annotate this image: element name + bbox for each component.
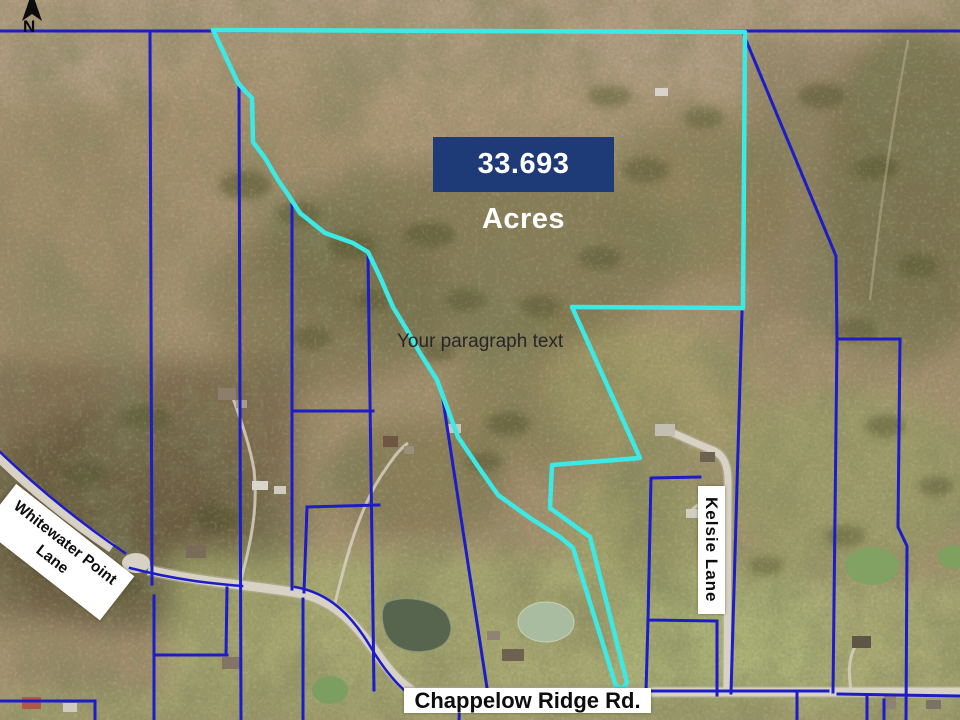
terrain-grain-light (0, 0, 960, 720)
pond-oval (518, 602, 574, 642)
aerial-map (0, 0, 960, 720)
map-canvas: N 33.693 Acres Your paragraph text White… (0, 0, 960, 720)
pond-right (845, 547, 899, 585)
road-label-chappelow: Chappelow Ridge Rd. (404, 688, 651, 713)
placeholder-text: Your paragraph text (397, 331, 563, 353)
pond-small (312, 676, 348, 704)
north-label: N (23, 17, 35, 37)
acreage-badge: 33.693 Acres (433, 137, 614, 192)
road-label-kelsie: Kelsie Lane (698, 486, 725, 614)
